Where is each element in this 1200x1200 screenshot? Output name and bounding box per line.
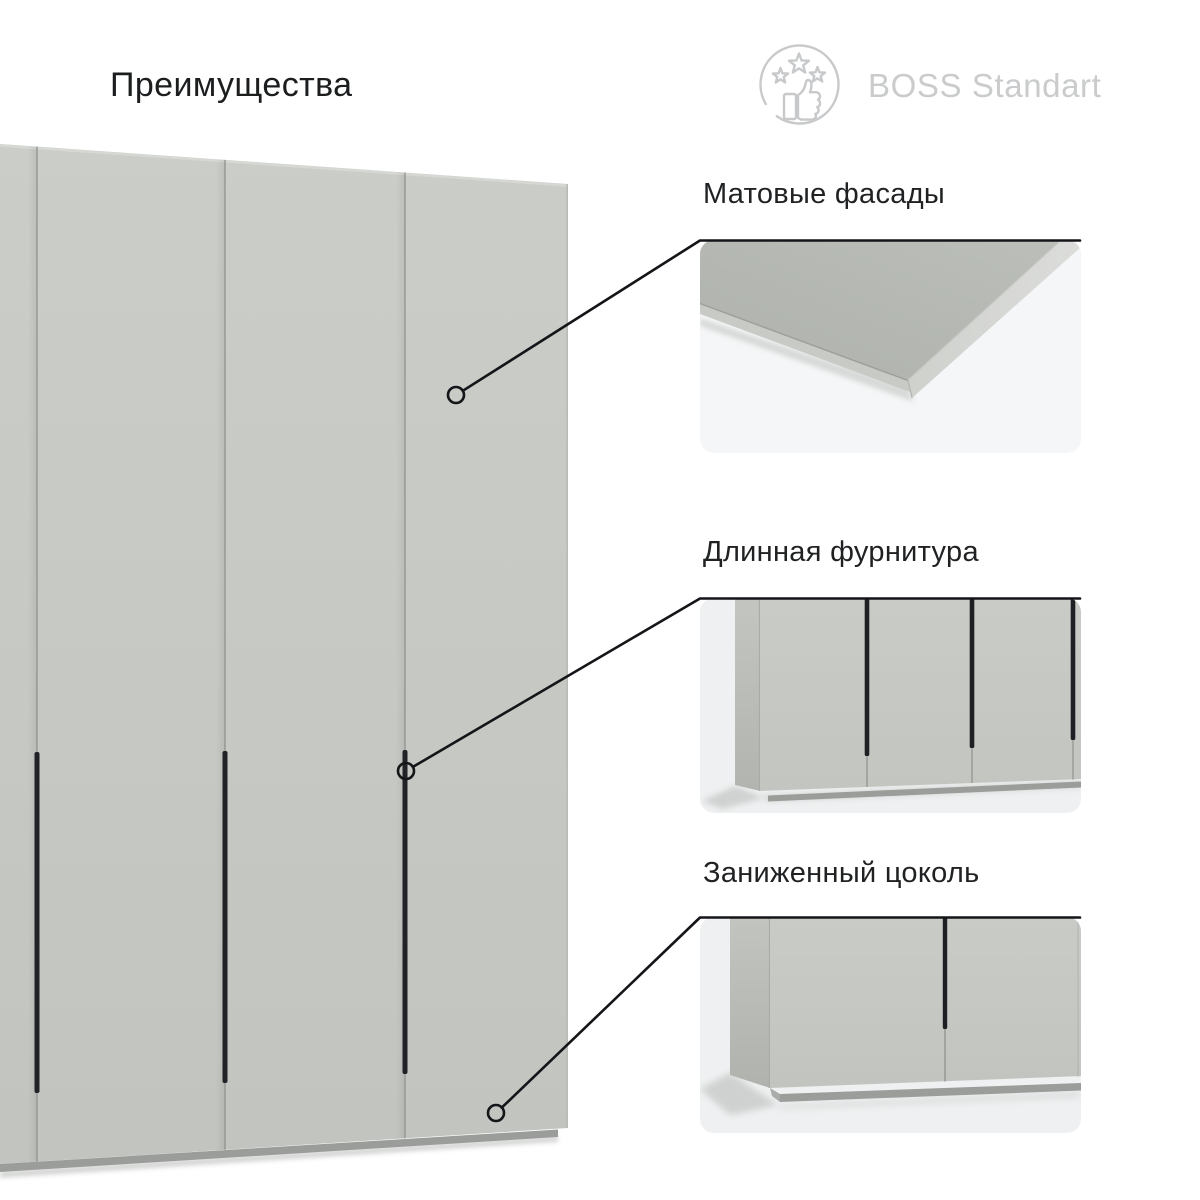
side-panel [730,917,770,1088]
brand-name: BOSS Standart [868,67,1101,105]
wardrobe-facade [0,140,600,1170]
wardrobe-doors [760,598,1081,791]
door-handle [970,598,975,748]
door-handle [865,598,870,756]
feature-image-matte-facades [700,240,1081,453]
advantages-page: Преимущества BOSS Standart [0,0,1200,1200]
door-handle [403,750,408,1074]
door-handle [35,752,40,1093]
feature-image-long-hardware [700,598,1081,813]
door-handle [943,917,947,1029]
side-panel [735,598,760,791]
door-handle [223,751,228,1083]
feature-label-long-hardware: Длинная фурнитура [703,536,979,569]
feature-image-low-plinth [700,917,1081,1133]
door-handle [1071,598,1076,740]
wardrobe-image [0,0,600,1200]
feature-label-matte-facades: Матовые фасады [703,178,945,211]
wardrobe-doors [770,917,1081,1088]
thumbs-up-with-stars-icon [757,42,842,127]
feature-label-low-plinth: Заниженный цоколь [703,857,980,890]
